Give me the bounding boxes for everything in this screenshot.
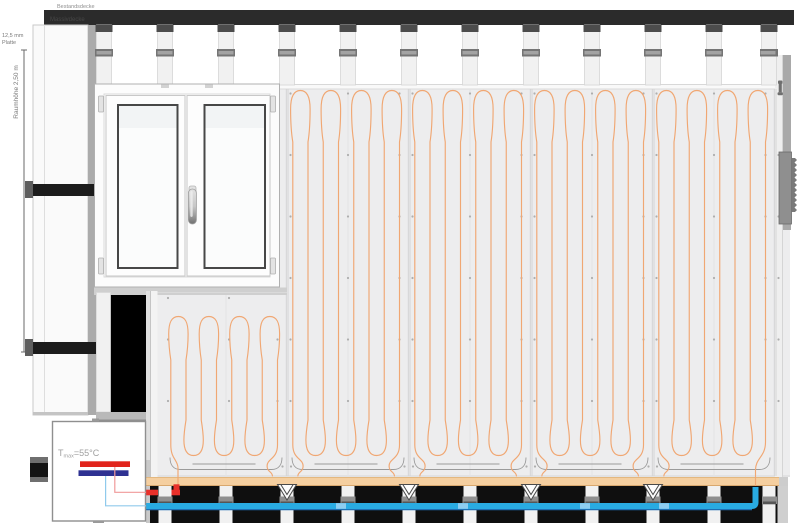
svg-text:Raumhöhe 2,50 m: Raumhöhe 2,50 m bbox=[13, 65, 20, 118]
svg-text:12,5 mm: 12,5 mm bbox=[2, 33, 24, 39]
svg-text:Bestandsdecke: Bestandsdecke bbox=[57, 4, 95, 10]
svg-text:Massivdecke: Massivdecke bbox=[50, 17, 85, 23]
svg-text:Platte: Platte bbox=[2, 40, 16, 46]
